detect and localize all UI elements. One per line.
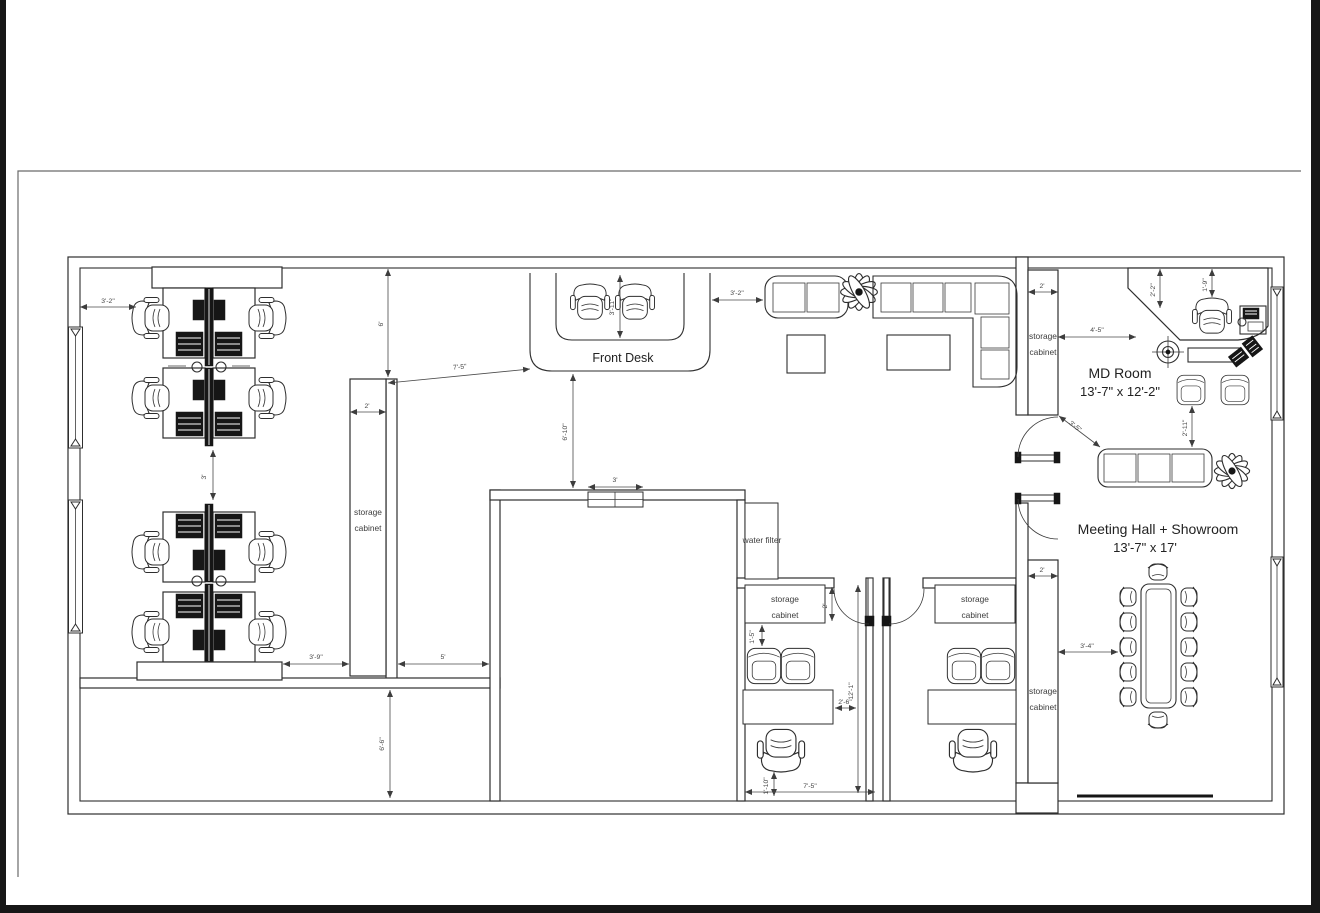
svg-text:storage: storage xyxy=(1029,686,1057,696)
window-left-2 xyxy=(69,500,83,633)
water-filter: water filter xyxy=(742,503,782,579)
dim-wall-to-cabinet: 6' xyxy=(378,321,385,326)
dim-md-cabinet: 2' xyxy=(1039,283,1044,290)
dim-desk-corridor: 6'-10" xyxy=(562,423,569,441)
office2-guest-chair-2 xyxy=(981,648,1014,683)
dim-hallway: 5' xyxy=(440,654,445,661)
window-right-1 xyxy=(1271,287,1283,420)
dim-shelf: 3' xyxy=(612,477,617,484)
hall-shelf xyxy=(588,492,643,507)
dim-md-offset-b: 1'-9" xyxy=(1202,278,1209,292)
md-room-size: 13'-7" x 12'-2" xyxy=(1080,384,1160,399)
floor-plan-canvas: storage cabinet Front Desk storage cabin… xyxy=(0,0,1320,913)
dim-mh-cabinet: 2' xyxy=(1039,567,1044,574)
sheet-bottom-edge xyxy=(0,905,1320,913)
window-left-1 xyxy=(69,327,83,448)
sheet-right-edge xyxy=(1311,0,1320,913)
dim-cabinet-to-desk: 7'-5" xyxy=(453,363,468,371)
wall-open-office-right xyxy=(386,379,397,680)
svg-text:cabinet: cabinet xyxy=(771,610,799,620)
md-guest-chair-2 xyxy=(1221,375,1249,405)
dim-desk-sofa: 3'-2" xyxy=(730,290,744,297)
dim-cluster-to-cabinet: 3'-9" xyxy=(309,654,323,661)
svg-text:cabinet: cabinet xyxy=(1029,702,1057,712)
dim-md-offset-a: 2'-2" xyxy=(1150,283,1157,297)
dim-cab-table: 3'-4" xyxy=(1080,643,1094,650)
workstation-base xyxy=(137,662,282,680)
wall-corridor-left xyxy=(490,490,500,801)
svg-text:storage: storage xyxy=(771,594,799,604)
dim-oo-cabinet: 2' xyxy=(364,403,369,410)
wall-meeting-hall-left xyxy=(1016,503,1028,783)
dim-chairs-sofa: 2'-11" xyxy=(1182,419,1189,436)
dim-chair-offset: 1'-10" xyxy=(763,777,770,795)
window-right-2 xyxy=(1271,557,1283,687)
dim-office-width: 7'-5" xyxy=(803,783,817,790)
dim-lower-room: 6'-6" xyxy=(379,737,386,751)
svg-text:storage: storage xyxy=(961,594,989,604)
svg-text:cabinet: cabinet xyxy=(1029,347,1057,357)
storage-cabinet-label: cabinet xyxy=(354,523,382,533)
dim-front-desk: 3'-11" xyxy=(609,298,616,315)
meeting-hall-size: 13'-7" x 17' xyxy=(1113,540,1177,555)
storage-cabinet-label: storage xyxy=(354,507,382,517)
storage-cabinet-meeting xyxy=(1028,560,1058,783)
md-room-name: MD Room xyxy=(1088,365,1151,381)
front-desk-label: Front Desk xyxy=(592,351,654,365)
dim-top-left: 3'-2" xyxy=(101,298,115,305)
svg-text:storage: storage xyxy=(1029,331,1057,341)
wall-pillar xyxy=(1016,783,1058,813)
dim-cluster-gap: 3' xyxy=(201,474,208,479)
office1-guest-chair-1 xyxy=(747,648,780,683)
office1-guest-chair-2 xyxy=(781,648,814,683)
wall-office1-left xyxy=(737,500,745,801)
office2-desk xyxy=(928,690,1016,724)
storage-cabinet-open-office: storage cabinet xyxy=(350,379,386,676)
md-guest-chair-1 xyxy=(1177,375,1205,405)
dim-cab-md-desk: 4'-5" xyxy=(1090,327,1104,334)
wall-filler-top xyxy=(152,267,282,288)
dim-of1-cabinet: 2' xyxy=(822,603,829,608)
office1-desk xyxy=(743,690,833,724)
cad-floorplan-sheet: storage cabinet Front Desk storage cabin… xyxy=(0,0,1320,913)
office2-guest-chair-1 xyxy=(947,648,980,683)
meeting-hall-name: Meeting Hall + Showroom xyxy=(1078,521,1239,537)
dim-office-depth: 12'-1" xyxy=(848,682,855,700)
svg-text:cabinet: cabinet xyxy=(961,610,989,620)
dim-desk-wall: 2'-6" xyxy=(838,699,852,706)
dim-cab-chairs: 1'-5" xyxy=(749,630,756,644)
water-filter-label: water filter xyxy=(742,535,782,545)
wall-md-room-left xyxy=(1016,257,1028,415)
sheet-left-edge xyxy=(0,0,6,913)
